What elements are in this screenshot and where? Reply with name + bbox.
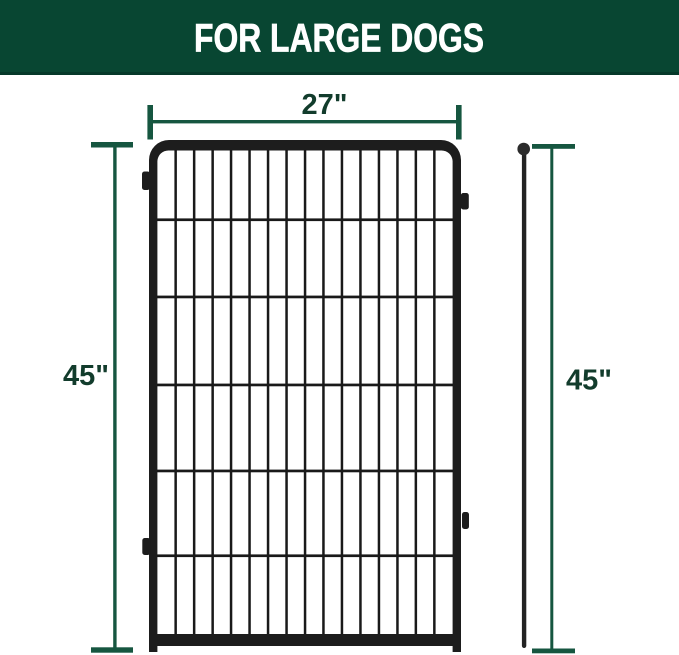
svg-text:27": 27" bbox=[301, 89, 347, 121]
svg-text:FOR LARGE DOGS: FOR LARGE DOGS bbox=[194, 17, 484, 61]
svg-text:45": 45" bbox=[63, 360, 109, 392]
svg-text:45": 45" bbox=[566, 365, 612, 397]
